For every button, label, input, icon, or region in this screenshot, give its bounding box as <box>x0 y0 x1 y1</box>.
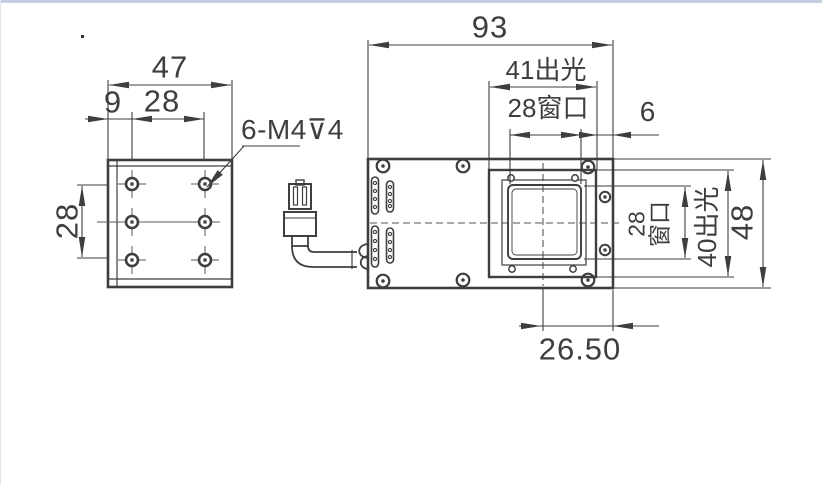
dim-window-height-value: 28 <box>625 201 648 247</box>
dim-light-width-label: 41出光 <box>506 57 587 83</box>
dim-overall-height-label: 48 <box>727 204 758 240</box>
dim-light-height-label: 40出光 <box>694 187 720 268</box>
vent-slots <box>372 177 394 267</box>
dim-center-offset-label: 26.50 <box>539 334 622 365</box>
thread-callout-label: 6-M4⊽4 <box>241 116 344 144</box>
dim-window-height-label: 28 窗口 <box>625 201 670 247</box>
dim-window-height-suffix: 窗口 <box>648 201 671 247</box>
dim-left-width-label: 47 <box>152 52 188 83</box>
cad-drawing-canvas: 47 9 28 28 6-M4⊽4 93 41出光 28窗口 6 28 窗口 4… <box>0 0 822 485</box>
mounting-holes <box>97 170 220 274</box>
dim-hole-offset-label: 9 <box>104 87 122 118</box>
dim-hole-spacing-h-label: 28 <box>144 86 180 117</box>
dim-window-width-label: 28窗口 <box>508 95 589 121</box>
dim-edge-offset-label: 6 <box>640 98 657 126</box>
power-connector <box>284 180 369 269</box>
dim-hole-spacing-v-label: 28 <box>52 203 83 239</box>
dim-overall-width-label: 93 <box>472 12 508 43</box>
